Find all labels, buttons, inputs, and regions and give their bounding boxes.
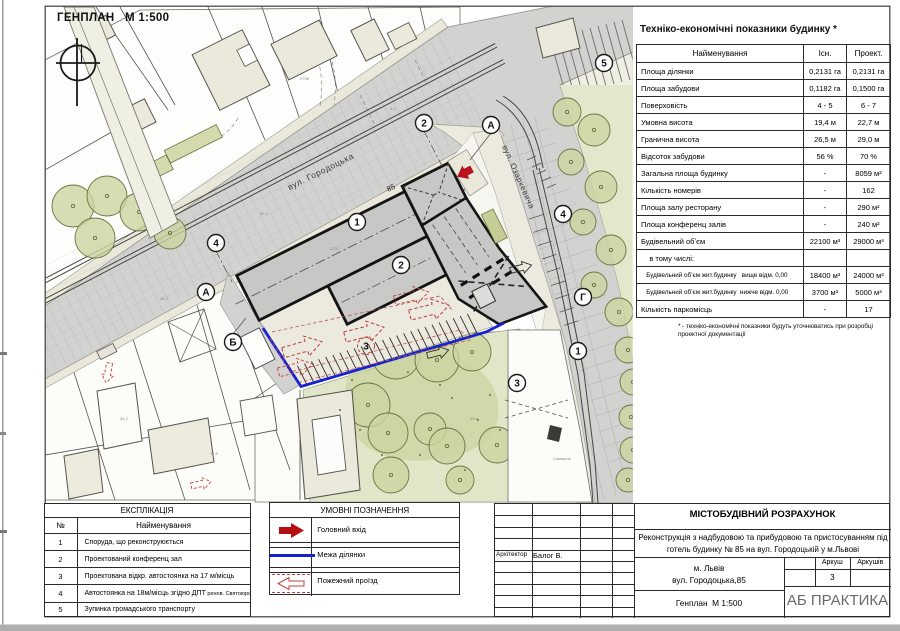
svg-text:1: 1 [575, 346, 581, 357]
svg-text:2: 2 [398, 260, 404, 271]
svg-text:2: 2 [421, 118, 427, 129]
svg-text:А: А [202, 287, 209, 298]
svg-text:25 м: 25 м [470, 416, 479, 421]
svg-text:4: 4 [560, 209, 566, 220]
svg-text:2707: 2707 [330, 246, 340, 251]
svg-text:Б: Б [229, 337, 236, 348]
svg-text:Г: Г [580, 292, 586, 303]
svg-text:85 1: 85 1 [260, 211, 269, 216]
svg-text:А: А [487, 120, 494, 131]
svg-text:2708: 2708 [300, 76, 310, 81]
svg-text:3: 3 [514, 378, 520, 389]
svg-text:28 2: 28 2 [160, 296, 169, 301]
svg-text:ГЕНПЛАН М 1:500: ГЕНПЛАН М 1:500 [57, 12, 169, 24]
svg-text:4: 4 [213, 238, 219, 249]
svg-text:17 8: 17 8 [210, 451, 219, 456]
svg-text:3: 3 [363, 342, 369, 353]
svg-text:4 6: 4 6 [390, 106, 396, 111]
svg-text:Сакевича: Сакевича [553, 456, 572, 461]
svg-text:34 2: 34 2 [120, 416, 129, 421]
svg-text:5: 5 [601, 58, 607, 69]
svg-text:1: 1 [354, 217, 360, 228]
